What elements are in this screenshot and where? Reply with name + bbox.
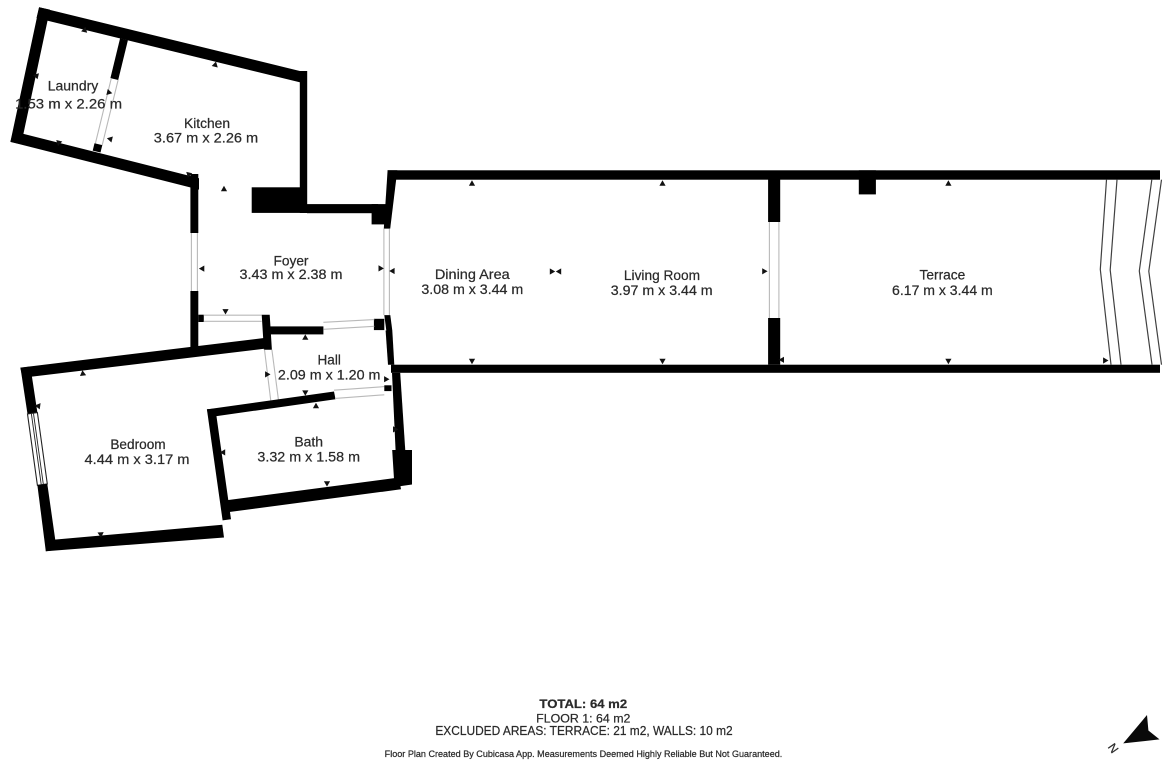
svg-text:Hall: Hall [318, 353, 341, 368]
svg-text:Living Room: Living Room [624, 268, 700, 283]
svg-text:Bedroom: Bedroom [110, 437, 165, 452]
svg-text:TOTAL: 64 m2: TOTAL: 64 m2 [539, 698, 627, 711]
svg-text:3.32 m x 1.58 m: 3.32 m x 1.58 m [257, 450, 360, 465]
svg-text:Dining Area: Dining Area [435, 267, 510, 282]
svg-text:3.43 m x 2.38 m: 3.43 m x 2.38 m [240, 267, 343, 282]
svg-text:Floor Plan Created By Cubicasa: Floor Plan Created By Cubicasa App. Meas… [385, 749, 783, 759]
svg-text:3.08 m x 3.44 m: 3.08 m x 3.44 m [421, 282, 523, 297]
svg-text:Kitchen: Kitchen [184, 116, 230, 131]
svg-text:3.97 m x 3.44 m: 3.97 m x 3.44 m [611, 283, 713, 298]
svg-text:1.53 m x 2.26 m: 1.53 m x 2.26 m [15, 97, 122, 112]
svg-text:Bath: Bath [294, 435, 323, 450]
svg-text:EXCLUDED AREAS: TERRACE: 21 m2: EXCLUDED AREAS: TERRACE: 21 m2, WALLS: 1… [435, 723, 732, 738]
svg-text:6.17 m x 3.44 m: 6.17 m x 3.44 m [892, 283, 993, 298]
svg-text:Terrace: Terrace [920, 268, 966, 283]
svg-text:Laundry: Laundry [48, 79, 99, 94]
svg-text:3.67 m x 2.26 m: 3.67 m x 2.26 m [154, 131, 258, 146]
svg-text:2.09 m x 1.20 m: 2.09 m x 1.20 m [278, 368, 381, 383]
svg-text:4.44 m x 3.17 m: 4.44 m x 3.17 m [85, 452, 190, 467]
